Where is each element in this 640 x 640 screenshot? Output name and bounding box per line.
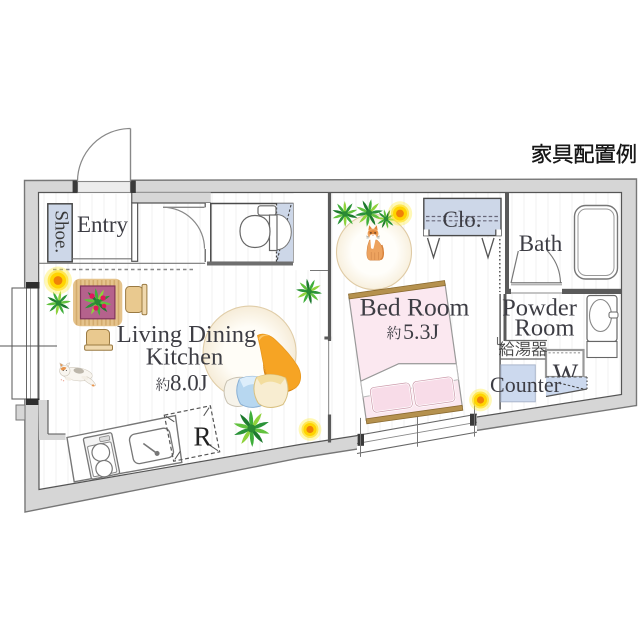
svg-text:Counter: Counter: [490, 372, 562, 397]
svg-text:8.0J: 8.0J: [170, 371, 208, 396]
svg-text:Clo.: Clo.: [443, 207, 482, 232]
svg-text:Bed Room: Bed Room: [360, 293, 470, 322]
svg-text:Room: Room: [515, 315, 575, 342]
svg-text:Entry: Entry: [77, 212, 129, 237]
svg-text:Bath: Bath: [519, 231, 563, 256]
svg-text:Kitchen: Kitchen: [146, 344, 224, 371]
svg-text:Shoe.: Shoe.: [50, 210, 71, 253]
svg-text:5.3J: 5.3J: [403, 319, 440, 344]
svg-text:R: R: [193, 422, 211, 452]
